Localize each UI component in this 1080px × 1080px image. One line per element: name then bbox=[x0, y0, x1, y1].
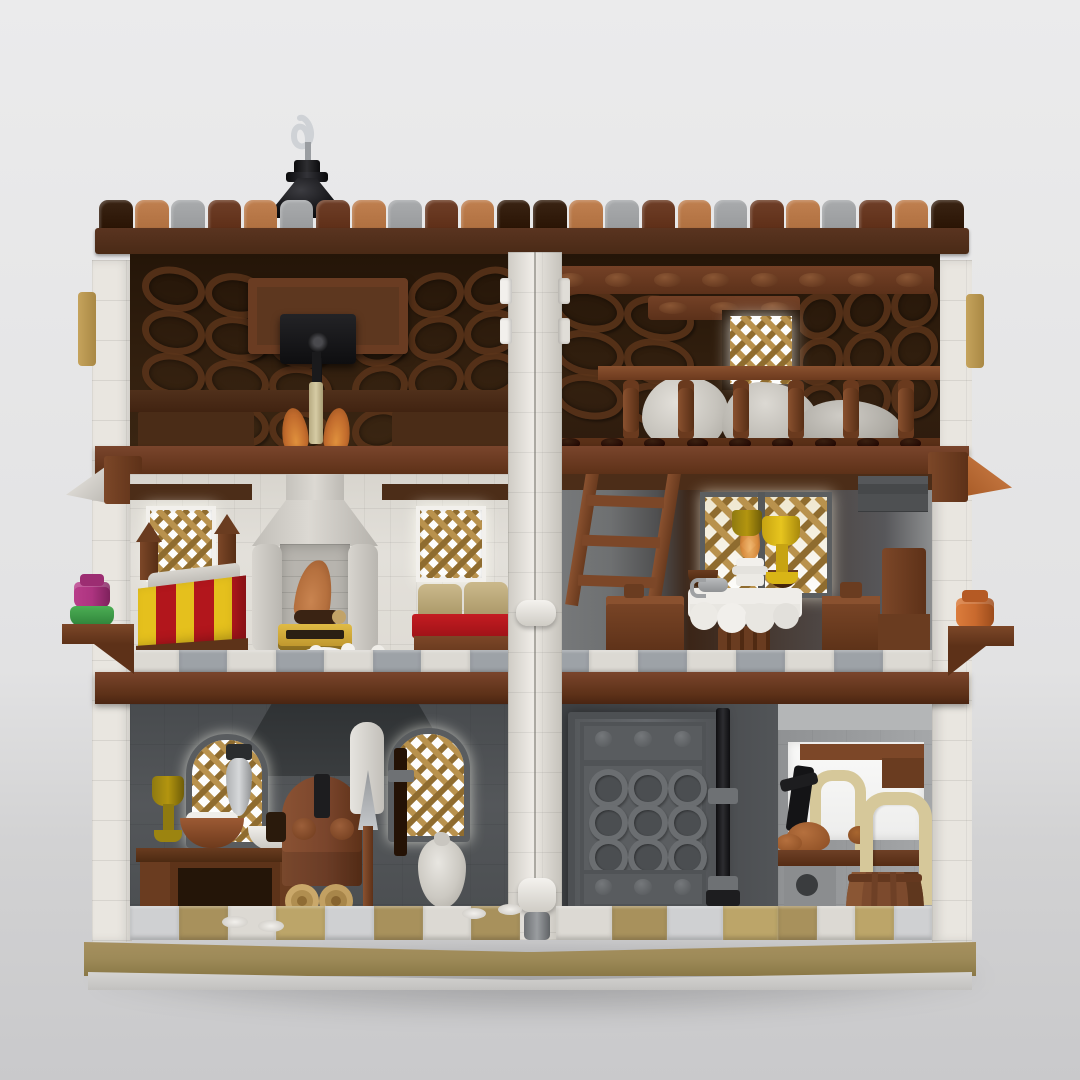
lintel-beam bbox=[382, 484, 518, 500]
floor-tile bbox=[324, 650, 373, 674]
beam-stud bbox=[702, 273, 729, 287]
fire-grate-slot bbox=[286, 630, 344, 639]
store-beam bbox=[778, 704, 932, 730]
flower-pot-orange-rim bbox=[962, 590, 988, 602]
oven-latch bbox=[314, 774, 330, 818]
rod-clamp bbox=[388, 770, 414, 782]
floor-tile bbox=[373, 650, 422, 674]
rafter-ring bbox=[142, 263, 205, 315]
bar-foot bbox=[706, 890, 740, 906]
fireplace-column bbox=[348, 544, 378, 652]
door-band-stud bbox=[674, 731, 691, 747]
hinge-pin-base bbox=[524, 912, 550, 940]
bench-mug bbox=[624, 584, 644, 598]
door-ring bbox=[668, 769, 707, 808]
hinge-tab bbox=[558, 318, 570, 344]
flour-sack bbox=[418, 838, 466, 906]
floor-tile bbox=[817, 906, 856, 940]
floor-tile bbox=[179, 650, 228, 674]
fireplace-chimney bbox=[286, 474, 344, 504]
bar-bracket bbox=[708, 788, 738, 804]
checker-floor bbox=[778, 906, 932, 940]
ladder-rung bbox=[582, 535, 660, 549]
goblet-olive bbox=[732, 510, 762, 536]
opening-block bbox=[882, 758, 924, 788]
left-tan-trim-tile bbox=[78, 292, 96, 366]
beam-stud bbox=[751, 273, 778, 287]
flour-sack-knot bbox=[434, 832, 450, 846]
beam-stud bbox=[659, 302, 687, 314]
right-corner-beam bbox=[928, 452, 968, 502]
floor-tile bbox=[667, 906, 723, 940]
floor-tile bbox=[130, 906, 179, 940]
shutter-panel bbox=[858, 476, 928, 512]
goblet-yellow-cup bbox=[762, 516, 800, 546]
paddle-shaft bbox=[363, 826, 373, 906]
left-sill-bracket bbox=[62, 624, 134, 644]
beam-stud bbox=[896, 273, 923, 287]
right-eave-wedge bbox=[966, 454, 1012, 496]
floor-tile bbox=[778, 906, 817, 940]
oven-handle bbox=[266, 812, 286, 842]
floor-tile bbox=[589, 650, 638, 674]
right-sill-bracket bbox=[948, 626, 1014, 646]
checker-floor bbox=[130, 650, 518, 674]
goblet-yellow-foot bbox=[766, 572, 798, 584]
barrel-room bbox=[778, 704, 932, 906]
hinge-cap bbox=[518, 878, 556, 912]
oven-boss bbox=[330, 818, 354, 840]
beam-stud bbox=[605, 273, 632, 287]
rafter-ring bbox=[408, 270, 464, 321]
door-band-stud bbox=[674, 879, 691, 895]
sand-baseplate bbox=[84, 938, 976, 976]
bakery-room bbox=[130, 704, 520, 906]
tavern-room bbox=[540, 474, 932, 674]
floor-tile bbox=[276, 650, 325, 674]
door-ring bbox=[628, 769, 667, 808]
floor-tile bbox=[276, 906, 325, 940]
flower-pot-orange bbox=[956, 598, 994, 628]
beam-stud bbox=[799, 273, 826, 287]
lattice-grille-icon bbox=[420, 510, 482, 578]
railing-balusters bbox=[606, 380, 936, 440]
oven-boss bbox=[292, 818, 316, 840]
door-stud-band bbox=[580, 722, 706, 764]
floor-tile bbox=[785, 650, 834, 674]
attic-right-room bbox=[540, 254, 940, 470]
rafter-ring bbox=[408, 313, 464, 364]
fire-log-end bbox=[332, 610, 346, 624]
storage-barrel bbox=[842, 866, 928, 906]
baluster bbox=[678, 380, 694, 440]
door-hall bbox=[556, 704, 778, 906]
tavern-bench bbox=[606, 596, 684, 654]
door-band-stud bbox=[634, 731, 651, 747]
roof-fascia bbox=[95, 228, 969, 254]
chandelier-pole bbox=[309, 382, 323, 444]
right-tan-trim-tile bbox=[966, 294, 984, 368]
floor-tile bbox=[687, 650, 736, 674]
dark-rod bbox=[394, 748, 407, 856]
rafter-ring bbox=[142, 306, 205, 358]
chandelier-rod bbox=[312, 352, 321, 386]
floor-tile bbox=[374, 906, 423, 940]
bench-seat bbox=[412, 614, 514, 638]
door-ring bbox=[628, 804, 667, 843]
floor-tile bbox=[883, 650, 932, 674]
beam-stud bbox=[848, 273, 875, 287]
floor-tile bbox=[130, 650, 179, 674]
door-band-stud bbox=[634, 879, 651, 895]
floor-plate bbox=[498, 904, 522, 915]
floor-tile bbox=[179, 906, 228, 940]
chair-mug bbox=[840, 582, 862, 598]
hinge-tab bbox=[500, 278, 512, 304]
bakery-chalice-stem bbox=[163, 804, 174, 832]
floor-tile bbox=[325, 906, 374, 940]
floor-tile bbox=[894, 906, 933, 940]
tavern-chair-back bbox=[882, 548, 926, 618]
hinge-cap bbox=[516, 600, 556, 626]
log-pile bbox=[282, 882, 358, 906]
floor-tile bbox=[834, 650, 883, 674]
bakery-chalice-foot bbox=[154, 830, 182, 842]
checker-floor bbox=[540, 650, 932, 674]
bench-cushion bbox=[464, 582, 508, 616]
candlestick bbox=[736, 574, 764, 586]
flower-pot-green bbox=[70, 606, 114, 626]
floor-plate bbox=[258, 920, 284, 932]
hoist-wheel bbox=[308, 332, 328, 352]
ladder-rung bbox=[578, 575, 656, 589]
goblet-yellow-stem bbox=[776, 544, 788, 574]
side-stud-beam bbox=[546, 266, 934, 294]
hinge-tab bbox=[558, 278, 570, 304]
scene bbox=[0, 0, 1080, 1080]
bench-cushion bbox=[418, 584, 462, 616]
flower-pot-magenta-rim bbox=[80, 574, 104, 586]
loft-shelf-beam bbox=[598, 366, 940, 380]
floor-plate bbox=[222, 916, 248, 928]
door-ring bbox=[668, 804, 707, 843]
spire-hook-icon bbox=[286, 110, 326, 166]
hinge-tab bbox=[500, 318, 512, 344]
door-ring-panel bbox=[580, 762, 706, 874]
door-stud-band bbox=[580, 870, 706, 906]
floor-tile bbox=[421, 650, 470, 674]
attic-beam bbox=[130, 390, 518, 412]
baluster bbox=[843, 380, 859, 440]
door-ring bbox=[589, 769, 628, 808]
floor-tile bbox=[612, 906, 668, 940]
baluster bbox=[623, 380, 639, 440]
floor-tile bbox=[556, 906, 612, 940]
floor-tile bbox=[723, 906, 779, 940]
baluster bbox=[788, 380, 804, 440]
baluster bbox=[733, 380, 749, 440]
floor-tile bbox=[736, 650, 785, 674]
checker-floor bbox=[556, 906, 778, 940]
cabinet-hole bbox=[796, 874, 818, 896]
rafter-ring bbox=[796, 289, 843, 342]
lattice-window bbox=[416, 506, 486, 582]
hinge-seam bbox=[534, 252, 536, 940]
door-ring bbox=[589, 804, 628, 843]
beam-stud bbox=[654, 273, 681, 287]
floor-tile bbox=[638, 650, 687, 674]
door-band-stud bbox=[595, 879, 612, 895]
floor-tile bbox=[855, 906, 894, 940]
floor-plate bbox=[462, 908, 486, 919]
floor-tile bbox=[227, 650, 276, 674]
bedroom bbox=[130, 474, 518, 674]
bakery-chalice bbox=[152, 776, 184, 806]
lintel-beam bbox=[130, 484, 252, 500]
ladder-rung bbox=[586, 495, 664, 509]
counter-opening bbox=[178, 868, 272, 906]
tankard-handle bbox=[690, 578, 706, 598]
door-band-stud bbox=[595, 731, 612, 747]
baluster bbox=[898, 380, 914, 440]
